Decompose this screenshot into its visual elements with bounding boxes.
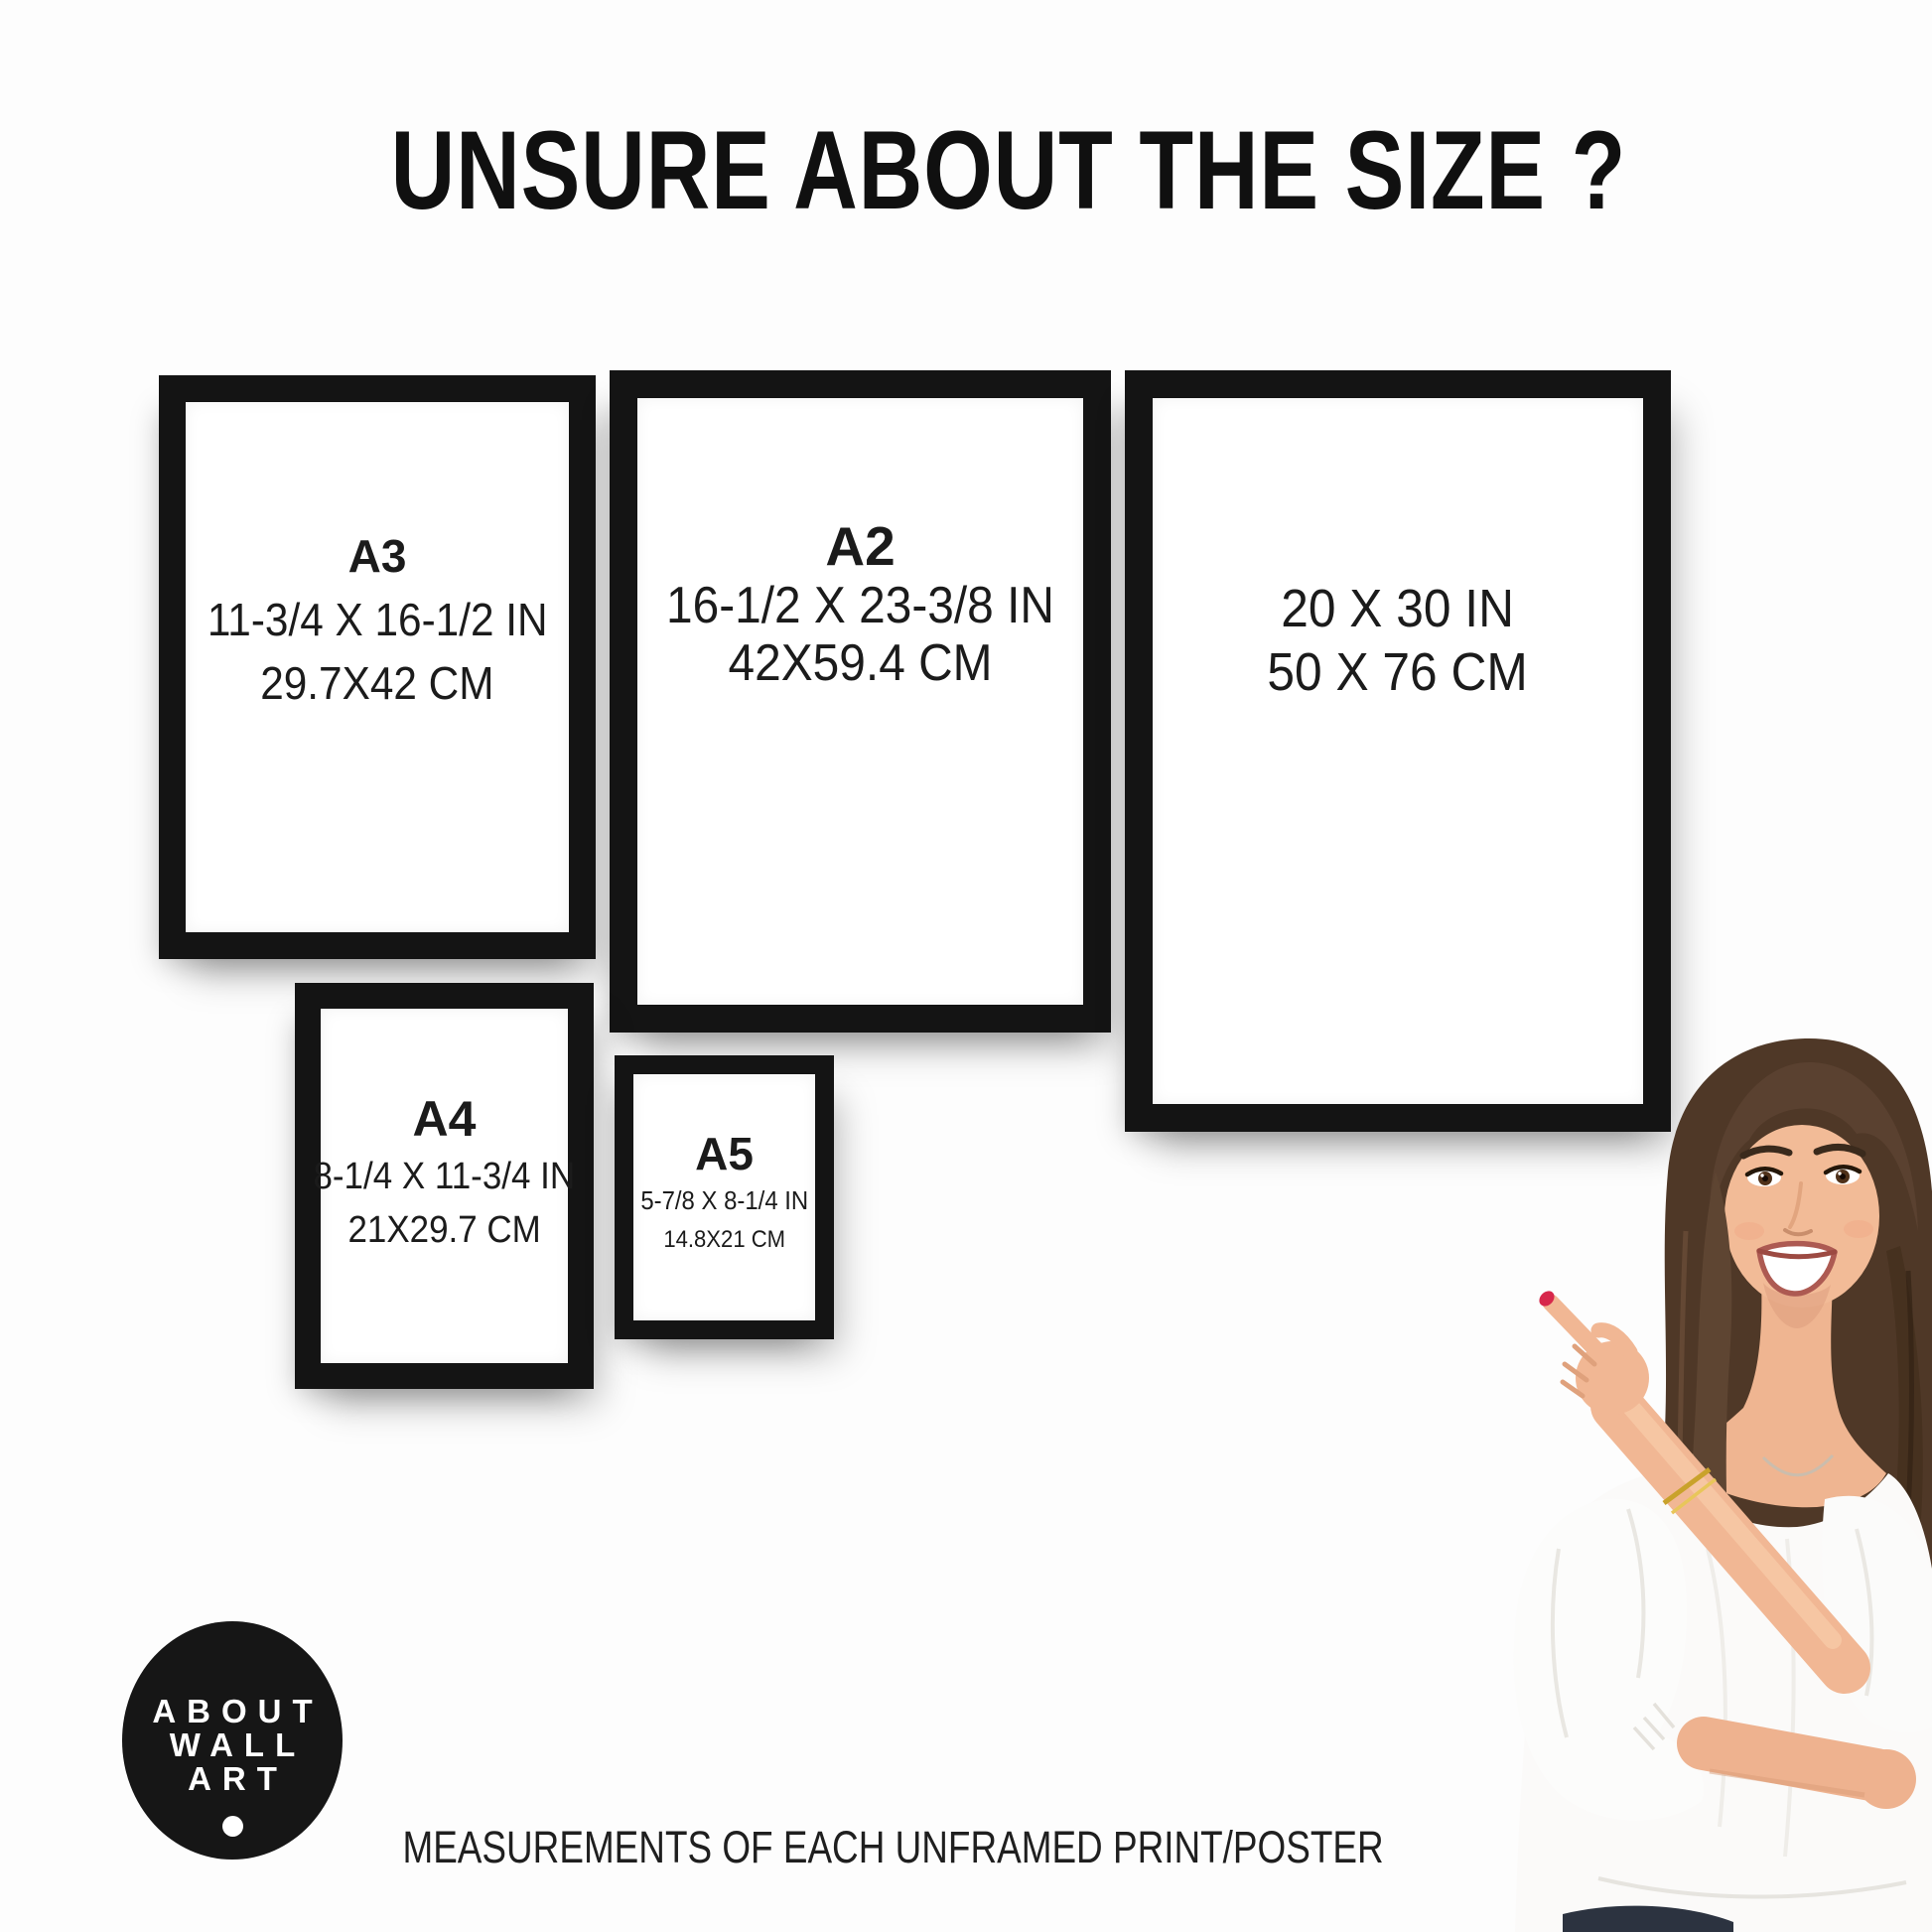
size-cm: 29.7X42 CM bbox=[116, 651, 638, 715]
frame-a2: A2 16-1/2 X 23-3/8 IN 42X59.4 CM bbox=[610, 370, 1111, 1033]
frame-a4: A4 8-1/4 X 11-3/4 IN 21X29.7 CM bbox=[295, 983, 594, 1389]
frame-a3-text: A3 11-3/4 X 16-1/2 IN 29.7X42 CM bbox=[116, 524, 638, 715]
size-cm: 42X59.4 CM bbox=[568, 634, 1153, 692]
size-guide-infographic: UNSURE ABOUT THE SIZE ? A3 11-3/4 X 16-1… bbox=[0, 0, 1932, 1932]
frame-a5: A5 5-7/8 X 8-1/4 IN 14.8X21 CM bbox=[615, 1055, 834, 1339]
frame-a5-text: A5 5-7/8 X 8-1/4 IN 14.8X21 CM bbox=[564, 1127, 885, 1260]
size-label: A5 bbox=[564, 1127, 885, 1180]
size-inches: 16-1/2 X 23-3/8 IN bbox=[568, 577, 1153, 634]
brand-logo-text-line2: WALL bbox=[159, 1728, 306, 1762]
page-title-text: UNSURE ABOUT THE SIZE ? bbox=[391, 115, 1627, 226]
size-label: A3 bbox=[116, 524, 638, 588]
pointing-hand bbox=[1536, 1288, 1649, 1415]
brand-logo-text-line1: ABOUT bbox=[141, 1695, 323, 1728]
woman-pointing-illustration bbox=[1459, 1033, 1932, 1932]
size-inches: 20 X 30 IN bbox=[1083, 577, 1713, 640]
frame-a3: A3 11-3/4 X 16-1/2 IN 29.7X42 CM bbox=[159, 375, 596, 959]
frame-20x30: 20 X 30 IN 50 X 76 CM bbox=[1125, 370, 1671, 1132]
size-inches: 11-3/4 X 16-1/2 IN bbox=[116, 588, 638, 651]
size-cm: 50 X 76 CM bbox=[1083, 640, 1713, 704]
frame-20x30-text: 20 X 30 IN 50 X 76 CM bbox=[1083, 577, 1713, 704]
frame-a2-text: A2 16-1/2 X 23-3/8 IN 42X59.4 CM bbox=[568, 515, 1153, 692]
brand-logo-text-line3: ART bbox=[177, 1762, 288, 1796]
page-title: UNSURE ABOUT THE SIZE ? bbox=[85, 115, 1932, 226]
size-inches: 5-7/8 X 8-1/4 IN bbox=[564, 1180, 885, 1220]
size-label: A2 bbox=[568, 515, 1153, 577]
measurements-caption-text: MEASUREMENTS OF EACH UNFRAMED PRINT/POST… bbox=[403, 1823, 1384, 1872]
size-cm: 14.8X21 CM bbox=[564, 1220, 885, 1260]
